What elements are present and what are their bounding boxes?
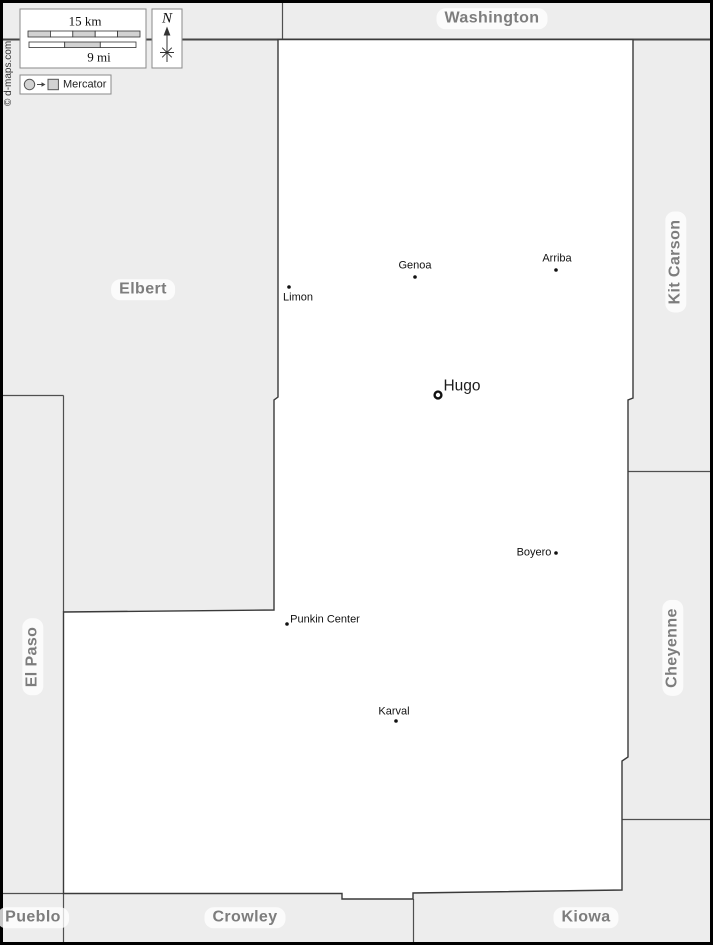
town-dot-boyero <box>554 551 558 555</box>
scale-mi-label: 9 mi <box>87 51 110 64</box>
projection-circle-icon <box>24 79 34 89</box>
county-seat-marker-hugo <box>435 392 442 399</box>
town-label-punkin-center: Punkin Center <box>290 615 360 626</box>
copyright-text: © d-maps.com <box>3 41 14 106</box>
county-label-elbert: Elbert <box>111 279 175 300</box>
county-label-el-paso: El Paso <box>22 619 43 696</box>
scale-bar-mi <box>29 42 136 48</box>
town-dot-limon <box>287 285 291 289</box>
projection-square-icon <box>48 79 58 89</box>
town-label-genoa: Genoa <box>398 261 431 272</box>
town-label-limon: Limon <box>283 293 313 304</box>
scale-bar-km <box>28 31 140 37</box>
town-label-boyero: Boyero <box>517 548 552 559</box>
projection-label: Mercator <box>63 80 106 91</box>
town-label-arriba: Arriba <box>542 254 571 265</box>
north-label: N <box>162 12 172 27</box>
town-dot-arriba <box>554 268 558 272</box>
county-label-cheyenne: Cheyenne <box>662 600 683 696</box>
county-label-kiowa: Kiowa <box>553 907 618 928</box>
county-label-kit-carson: Kit Carson <box>665 212 686 313</box>
county-map: Washington Elbert Kit Carson Cheyenne El… <box>0 0 713 945</box>
town-dot-genoa <box>413 275 417 279</box>
town-dot-punkin-center <box>285 622 289 626</box>
county-label-washington: Washington <box>437 8 548 29</box>
town-label-karval: Karval <box>378 707 409 718</box>
county-label-crowley: Crowley <box>204 907 285 928</box>
map-canvas <box>0 0 713 945</box>
town-label-hugo: Hugo <box>443 378 480 394</box>
county-label-pueblo: Pueblo <box>0 907 69 928</box>
town-dot-karval <box>394 719 398 723</box>
scale-km-label: 15 km <box>69 15 102 28</box>
